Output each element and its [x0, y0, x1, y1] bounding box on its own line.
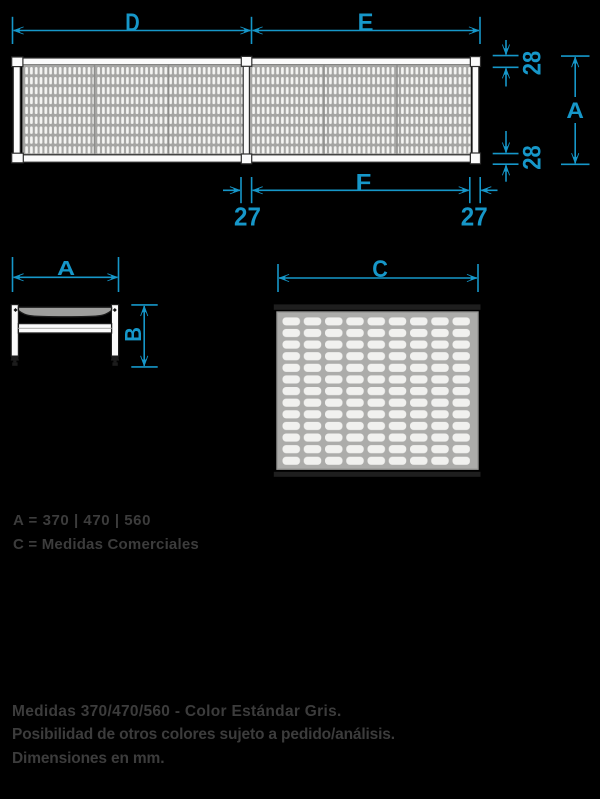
- svg-text:F: F: [356, 170, 372, 195]
- svg-text:B: B: [120, 327, 147, 342]
- svg-text:A: A: [57, 256, 75, 279]
- svg-text:D: D: [125, 9, 139, 37]
- svg-text:27: 27: [234, 203, 261, 232]
- svg-text:27: 27: [461, 203, 488, 232]
- svg-text:C: C: [372, 255, 388, 282]
- svg-text:28: 28: [518, 51, 546, 75]
- svg-text:A: A: [566, 98, 584, 123]
- svg-text:E: E: [358, 9, 374, 37]
- svg-text:28: 28: [518, 145, 546, 169]
